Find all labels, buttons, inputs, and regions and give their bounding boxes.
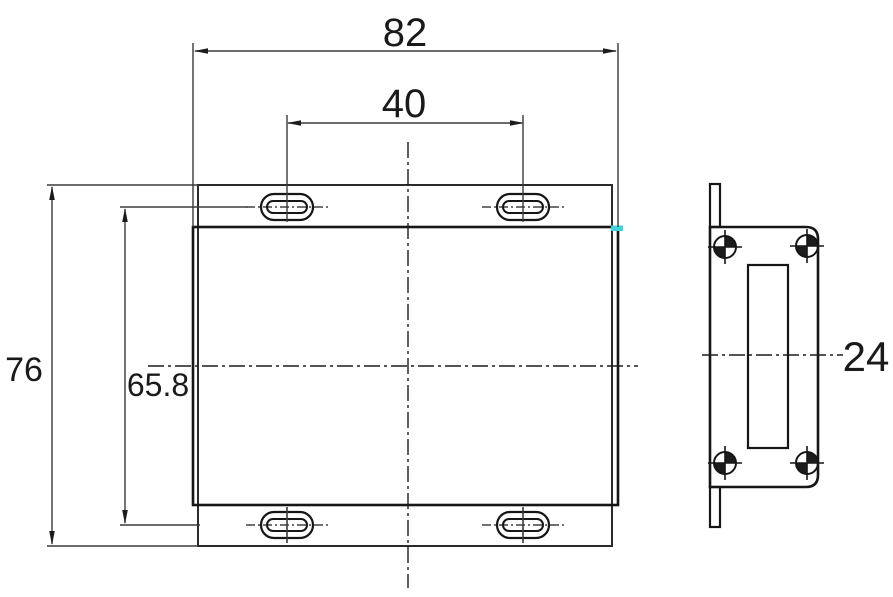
mounting-slot-top-left (246, 115, 328, 222)
side-flange-tab-bottom (710, 487, 720, 527)
arrowhead-right (510, 120, 524, 126)
arrowhead-bottom (122, 510, 128, 524)
arrowhead-right (603, 48, 617, 54)
dimension-text-76: 76 (5, 351, 43, 389)
target-mark-bottom-left (708, 446, 742, 480)
dimension-slot-spacing: 40 (287, 82, 524, 126)
mounting-slot-bottom-left (246, 507, 328, 543)
dimension-text-82: 82 (383, 11, 428, 55)
highlight-marker (611, 226, 623, 232)
arrowhead-left (287, 120, 301, 126)
arrowhead-top (49, 186, 55, 200)
dimension-text-24: 24 (843, 333, 890, 380)
arrowhead-bottom (49, 531, 55, 545)
target-mark-top-left (708, 230, 742, 264)
dimension-text-40: 40 (382, 82, 427, 126)
drawing-svg: 82 40 76 65.8 (0, 0, 893, 597)
arrowhead-top (122, 208, 128, 222)
dimension-text-65-8: 65.8 (127, 367, 189, 403)
mounting-slot-top-right (482, 115, 564, 222)
front-view (148, 115, 638, 588)
mounting-slot-bottom-right (482, 507, 564, 543)
technical-drawing-canvas: 82 40 76 65.8 (0, 0, 893, 597)
arrowhead-left (194, 48, 208, 54)
side-view: 24 (702, 184, 889, 527)
side-slot-opening (748, 265, 788, 448)
side-flange-tab-top (710, 184, 720, 227)
